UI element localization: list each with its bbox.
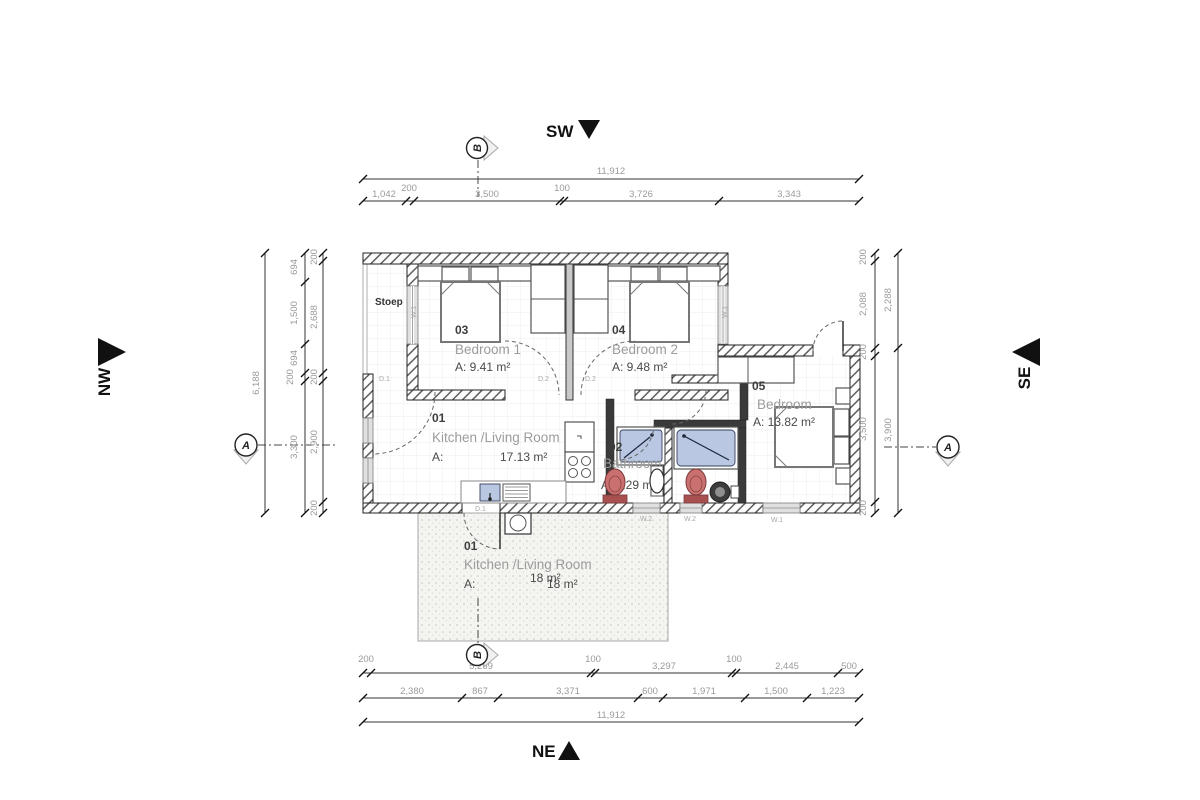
compass-nw-arrow-icon bbox=[98, 338, 126, 366]
wall-bottom-5 bbox=[800, 503, 860, 513]
dim-right-inner-4: 200 bbox=[858, 500, 869, 516]
dim-bot2-6: 1,223 bbox=[821, 686, 845, 697]
dim-bot2-2: 3,371 bbox=[556, 686, 580, 697]
pillow bbox=[631, 267, 658, 281]
kitchen-stove bbox=[565, 452, 594, 482]
dim-left-mid-3: 200 bbox=[285, 369, 296, 385]
compass-se-arrow-icon bbox=[1012, 338, 1040, 366]
patio-name: Kitchen /Living Room bbox=[464, 557, 592, 572]
patio-area-duplicate: 18 m² bbox=[547, 577, 578, 591]
svg-text:A: A bbox=[943, 442, 952, 454]
pillow bbox=[660, 267, 687, 281]
compass-nw-label: NW bbox=[95, 367, 114, 396]
window-bath-w2 bbox=[633, 503, 660, 513]
wall-bedroom-partition bbox=[566, 264, 573, 400]
kitchen-area-prefix: A: bbox=[432, 450, 443, 464]
dim-bot1-2: 100 bbox=[585, 654, 601, 665]
wardrobe-bedroom2 bbox=[574, 265, 608, 333]
svg-text:B: B bbox=[472, 651, 484, 659]
dim-bottom-total: 11,912 bbox=[597, 710, 625, 721]
patio-area-prefix: A: bbox=[464, 577, 475, 591]
dim-left-mid-1: 1,500 bbox=[289, 301, 300, 325]
wardrobe-bedroom1 bbox=[531, 265, 565, 333]
door-tag-patio: D.1 bbox=[475, 506, 486, 513]
dim-bot2-3: 600 bbox=[642, 686, 658, 697]
dim-left-inner-0: 200 bbox=[309, 249, 320, 265]
dim-top-seg-1: 3,500 bbox=[475, 189, 499, 200]
wall-left-mid bbox=[363, 443, 373, 458]
dim-right-inner-1: 2,088 bbox=[858, 292, 869, 316]
dim-right-outer-0: 2,288 bbox=[883, 288, 894, 312]
dim-left-inner-1: 2,688 bbox=[309, 305, 320, 329]
dim-top-seg-0: 1,042 bbox=[372, 189, 396, 200]
stoep-edge bbox=[363, 264, 367, 374]
bedroom2-number: 04 bbox=[612, 323, 626, 337]
dim-left-inner-4: 200 bbox=[309, 500, 320, 516]
wall-stoep-divider-lower bbox=[407, 344, 418, 390]
kitchen-area: 17.13 m² bbox=[500, 450, 547, 464]
stoep-label: Stoep bbox=[375, 297, 403, 308]
kitchen-fridge bbox=[565, 422, 594, 452]
toilet-bathroom bbox=[603, 469, 627, 503]
wall-left-upper bbox=[363, 374, 373, 418]
nightstand bbox=[836, 468, 850, 484]
dim-top-minor-100: 100 bbox=[554, 183, 570, 194]
dim-left-total: 6,188 bbox=[251, 371, 262, 395]
window-shower-w2 bbox=[680, 503, 702, 513]
compass-se-label: SE bbox=[1015, 367, 1034, 390]
section-marker-a-left: A bbox=[234, 434, 258, 464]
dim-top-total: 11,912 bbox=[597, 166, 625, 177]
dim-top-seg-3: 3,343 bbox=[777, 189, 801, 200]
window-tag-shower: W.2 bbox=[684, 516, 696, 523]
compass-ne-label: NE bbox=[532, 742, 556, 761]
door-tag-bed1: D.2 bbox=[538, 376, 549, 383]
dim-bot2-1: 867 bbox=[472, 686, 488, 697]
compass-ne-arrow-icon bbox=[558, 741, 580, 760]
bedroom1-number: 03 bbox=[455, 323, 469, 337]
wall-stoep-divider-upper bbox=[407, 264, 418, 286]
shower-ensuite bbox=[674, 427, 738, 469]
door-tag-bed2: D.2 bbox=[585, 376, 596, 383]
wall-bottom-4 bbox=[702, 503, 763, 513]
basin-bathroom bbox=[650, 466, 664, 496]
dim-right-inner-0: 200 bbox=[858, 249, 869, 265]
bedroom5-name: Bedroom bbox=[757, 397, 812, 412]
floor-plan-drawing: 11,912 200 100 1,042 3,500 3,726 3,343 2… bbox=[0, 0, 1200, 800]
patio-number: 01 bbox=[464, 539, 478, 553]
door-tag-stoep: D.1 bbox=[379, 376, 390, 383]
dim-bot2-4: 1,971 bbox=[692, 686, 716, 697]
window-kitchen-west-1 bbox=[363, 418, 373, 443]
dim-left-inner-3: 2,900 bbox=[309, 430, 320, 454]
dim-bot2-0: 2,380 bbox=[400, 686, 424, 697]
svg-text:B: B bbox=[472, 144, 484, 152]
pillow bbox=[471, 267, 498, 281]
wall-top bbox=[363, 253, 728, 264]
bedroom2-name: Bedroom 2 bbox=[612, 342, 678, 357]
bedroom1-area: A: 9.41 m² bbox=[455, 360, 510, 374]
bathroom-number: 02 bbox=[609, 440, 623, 454]
wall-wing-top-left bbox=[718, 345, 813, 356]
dim-left-mid-0: 694 bbox=[289, 259, 300, 275]
floor-plan-sheet: 11,912 200 100 1,042 3,500 3,726 3,343 2… bbox=[0, 0, 1200, 800]
bedroom5-number: 05 bbox=[752, 379, 766, 393]
window-tag-bed2: W.1 bbox=[722, 306, 729, 318]
dim-bot1-5: 2,445 bbox=[775, 661, 799, 672]
dim-bot2-5: 1,500 bbox=[764, 686, 788, 697]
kitchen-name: Kitchen /Living Room bbox=[432, 430, 560, 445]
pillow bbox=[834, 437, 849, 464]
wall-hall-north bbox=[672, 375, 720, 383]
wall-bottom-2 bbox=[500, 503, 633, 513]
dim-bot1-3: 3,297 bbox=[652, 661, 676, 672]
bedroom1-name: Bedroom 1 bbox=[455, 342, 521, 357]
dim-top-seg-2: 3,726 bbox=[629, 189, 653, 200]
dim-right-inner-3: 3,500 bbox=[858, 417, 869, 441]
window-tag-bed5: W.1 bbox=[771, 517, 783, 524]
kitchen-number: 01 bbox=[432, 411, 446, 425]
toilet-ensuite bbox=[684, 469, 708, 503]
patio-step bbox=[505, 513, 531, 534]
dim-top-minor-200: 200 bbox=[401, 183, 417, 194]
window-tag-bath: W.2 bbox=[640, 516, 652, 523]
dim-bot1-0: 200 bbox=[358, 654, 374, 665]
dim-left-inner-2: 200 bbox=[309, 369, 320, 385]
wall-hall-east bbox=[740, 383, 748, 420]
nightstand bbox=[836, 388, 850, 404]
dim-right-outer-1: 3,900 bbox=[883, 418, 894, 442]
kitchen-counter-sink bbox=[461, 481, 566, 503]
dim-left-mid-4: 3,300 bbox=[289, 435, 300, 459]
bedroom5-area: A: 13.82 m² bbox=[753, 415, 815, 429]
wall-wing-bottom-right bbox=[635, 390, 728, 400]
wall-bottom-1 bbox=[363, 503, 462, 513]
compass-sw-arrow-icon bbox=[578, 120, 600, 139]
dim-bot1-4: 100 bbox=[726, 654, 742, 665]
bedroom2-area: A: 9.48 m² bbox=[612, 360, 667, 374]
window-bed5-w1 bbox=[763, 503, 800, 513]
dim-bot1-6: 500 bbox=[841, 661, 857, 672]
section-marker-a-right: A bbox=[936, 436, 960, 466]
dim-left-mid-2: 694 bbox=[289, 350, 300, 366]
wall-wing-bottom-left bbox=[407, 390, 505, 400]
wall-bottom-3 bbox=[660, 503, 680, 513]
compass-sw-label: SW bbox=[546, 122, 574, 141]
window-tag-stoep: W.1 bbox=[411, 306, 418, 318]
svg-text:A: A bbox=[241, 440, 250, 452]
pillow bbox=[834, 409, 849, 436]
dim-right-inner-2: 200 bbox=[858, 344, 869, 360]
door-arc-wing-entry bbox=[813, 321, 843, 351]
window-kitchen-west-2 bbox=[363, 458, 373, 483]
section-marker-b-bottom: B bbox=[467, 643, 499, 667]
section-marker-b-top: B bbox=[467, 136, 499, 160]
pillow bbox=[442, 267, 469, 281]
